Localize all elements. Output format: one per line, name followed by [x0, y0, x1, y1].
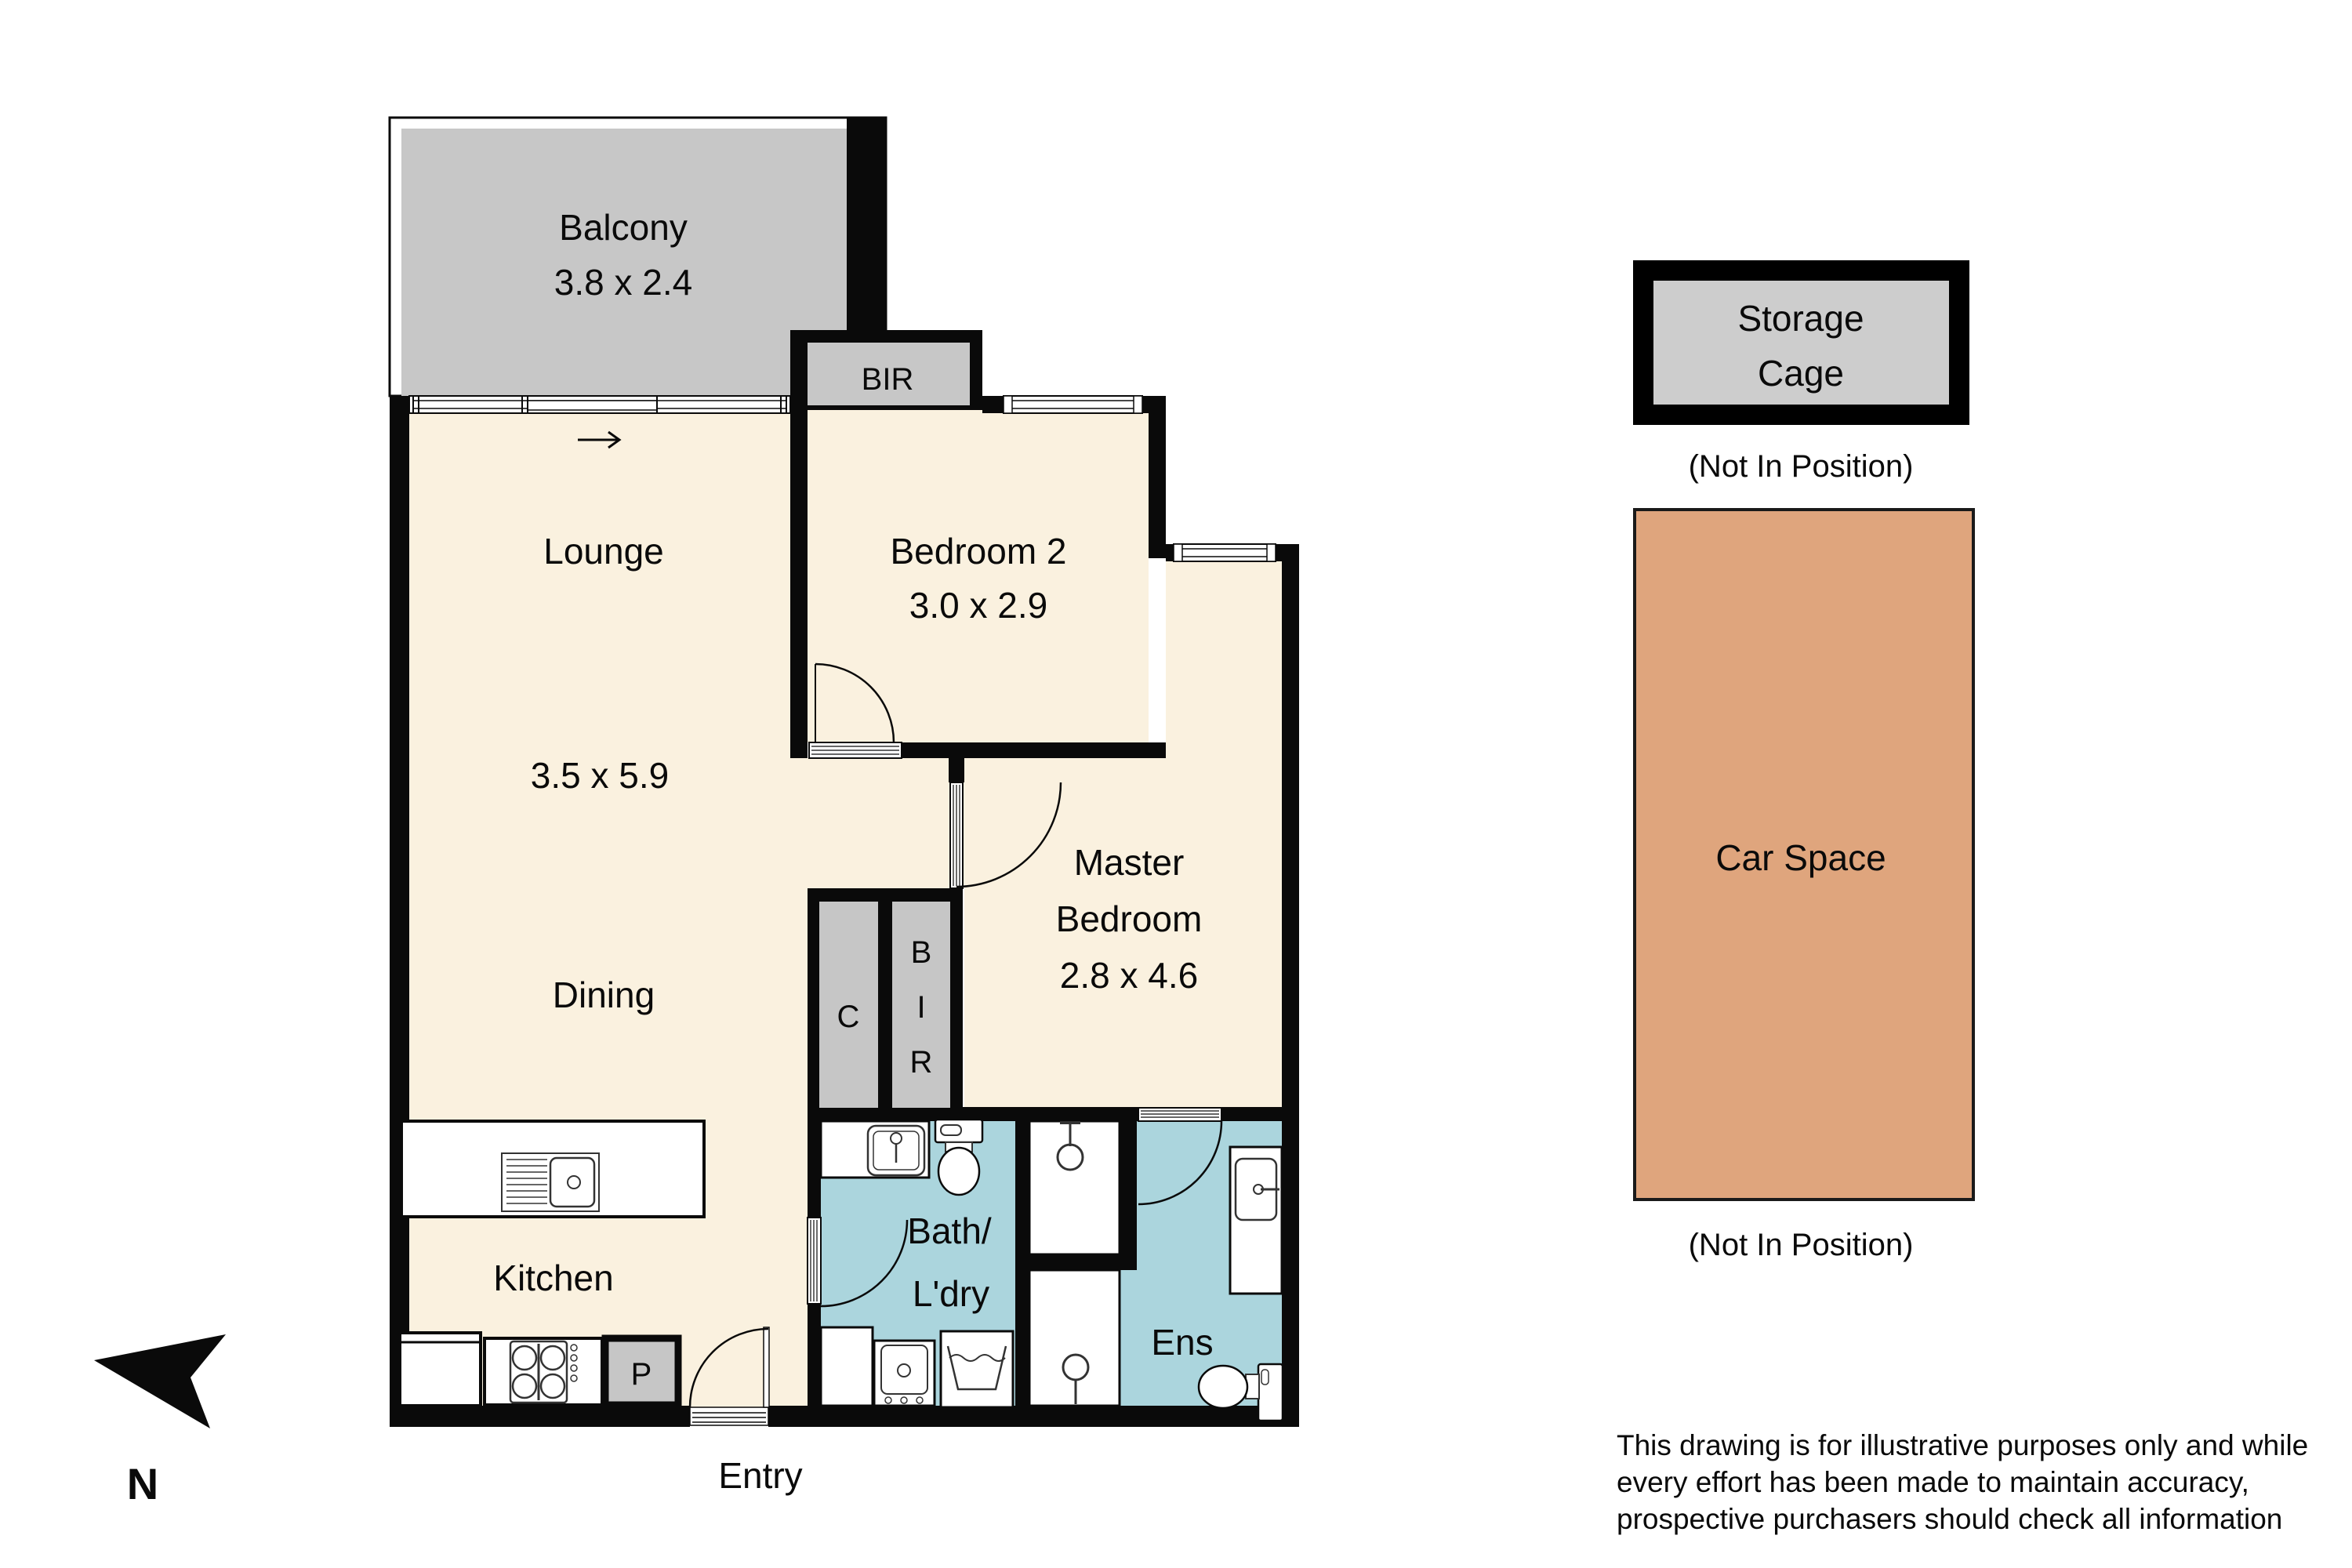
north-compass: N	[94, 1334, 226, 1508]
kitchen-island	[401, 1121, 704, 1217]
storage-label-2: Cage	[1758, 353, 1844, 394]
car-space-label: Car Space	[1715, 837, 1886, 878]
laundry-sink-icon	[874, 1341, 935, 1406]
floorplan-page: Balcony 3.8 x 2.4 BIR Lounge 3.5 x 5.9 D…	[0, 0, 2352, 1568]
fridge-bench	[400, 1333, 481, 1406]
wall-bottom-right	[768, 1406, 1299, 1427]
wall-bir-bottom-line	[806, 405, 970, 410]
wall-bedroom2-right	[1149, 396, 1166, 558]
wall-bed2-top-seg1	[982, 396, 1004, 413]
disclaimer-line-2: every effort has been made to maintain a…	[1617, 1466, 2249, 1498]
bath-label-1: Bath/	[907, 1210, 992, 1251]
wall-bottom-left	[390, 1406, 690, 1427]
car-space-note: (Not In Position)	[1689, 1228, 1914, 1262]
dining-label: Dining	[553, 975, 655, 1015]
wall-shower-ens-divider	[1120, 1108, 1137, 1255]
disclaimer-line-3: prospective purchasers should check all …	[1617, 1503, 2282, 1535]
master-window	[1174, 544, 1276, 561]
master-dims: 2.8 x 4.6	[1060, 955, 1198, 996]
ens-shower	[1029, 1270, 1120, 1406]
bir-top-label: BIR	[862, 362, 914, 397]
lounge-label: Lounge	[543, 531, 664, 572]
storage-label-1: Storage	[1737, 298, 1864, 339]
bedroom2-dims: 3.0 x 2.9	[909, 585, 1047, 626]
wall-master-top-seg1	[1166, 544, 1174, 561]
kitchen-label: Kitchen	[493, 1258, 613, 1298]
ens-vanity	[1230, 1147, 1282, 1294]
balcony-dims: 3.8 x 2.4	[554, 262, 692, 303]
bath-shower	[1029, 1121, 1120, 1254]
balcony-slider-window	[409, 396, 790, 413]
storage-note: (Not In Position)	[1689, 449, 1914, 484]
sliding-leaf	[528, 401, 657, 410]
disclaimer-text: This drawing is for illustrative purpose…	[1617, 1429, 2308, 1535]
balcony-label: Balcony	[559, 207, 688, 248]
bir-letter-r: R	[910, 1045, 933, 1080]
wall-shower-horizontal	[1015, 1255, 1137, 1270]
hallway-floor	[808, 758, 964, 888]
wall-bedroom2-bottom	[902, 742, 1166, 758]
master-label-1: Master	[1074, 842, 1185, 883]
wall-hall-stub	[949, 742, 964, 782]
master-label-2: Bedroom	[1056, 898, 1203, 939]
kitchen-sink-icon	[502, 1153, 599, 1211]
bedroom2-floor	[808, 410, 1149, 742]
bath-label-2: L'dry	[913, 1273, 989, 1314]
bath-toilet-icon	[935, 1120, 982, 1195]
floorplan-drawing: Balcony 3.8 x 2.4 BIR Lounge 3.5 x 5.9 D…	[0, 0, 2352, 1568]
bir-letter-b: B	[911, 935, 932, 970]
bath-sink-icon	[868, 1126, 924, 1175]
north-label: N	[127, 1459, 158, 1508]
laundry-trough-icon	[941, 1331, 1013, 1407]
wall-bir-right	[970, 330, 982, 410]
storage-cage: Storage Cage (Not In Position)	[1633, 260, 1969, 484]
wall-balcony-column	[847, 118, 886, 330]
wall-bedroom2-left	[790, 330, 808, 758]
wall-master-bottom-1	[963, 1107, 1138, 1121]
north-arrow-icon	[94, 1334, 226, 1428]
lounge-dims: 3.5 x 5.9	[531, 755, 669, 796]
ensuite-floor-patch	[1120, 1270, 1137, 1406]
pantry-label: P	[631, 1357, 652, 1392]
entry-label: Entry	[718, 1455, 802, 1496]
wall-master-bottom-2	[1221, 1107, 1283, 1121]
bath-vanity	[821, 1121, 929, 1178]
wall-bath-left-a	[808, 1121, 821, 1218]
wall-bir-top	[790, 330, 982, 343]
cooktop-icon	[485, 1338, 602, 1405]
bedroom2-window	[1004, 396, 1142, 413]
car-space: Car Space (Not In Position)	[1635, 510, 1973, 1262]
bir-letter-i: I	[916, 990, 925, 1025]
disclaimer-line-1: This drawing is for illustrative purpose…	[1617, 1429, 2308, 1461]
ens-label: Ens	[1151, 1322, 1213, 1363]
bedroom2-label: Bedroom 2	[890, 531, 1066, 572]
wall-master-right	[1282, 544, 1299, 1427]
wall-left	[390, 396, 409, 1427]
wall-bath-left-b	[808, 1304, 821, 1406]
closet-c-label: C	[837, 1000, 860, 1034]
